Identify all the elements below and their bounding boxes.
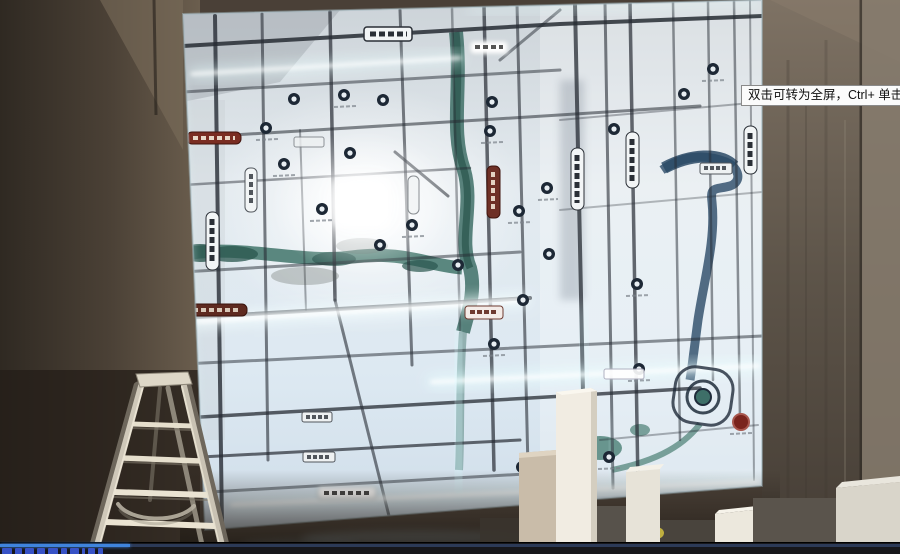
- photo-scene: [0, 0, 900, 554]
- seek-progress: [0, 544, 130, 547]
- map-light-board: [180, 0, 762, 530]
- bright-glow-square: [270, 131, 454, 275]
- red-logo-marker: [733, 414, 749, 430]
- player-bar: [0, 542, 900, 554]
- right-pillar: [762, 0, 900, 554]
- video-frame[interactable]: 双击可转为全屏，Ctrl+ 单击可转为: [0, 0, 900, 554]
- clipped-caption-glyphs: [2, 548, 103, 554]
- seek-bar[interactable]: [0, 544, 900, 547]
- fullscreen-tooltip: 双击可转为全屏，Ctrl+ 单击可转为: [741, 85, 900, 106]
